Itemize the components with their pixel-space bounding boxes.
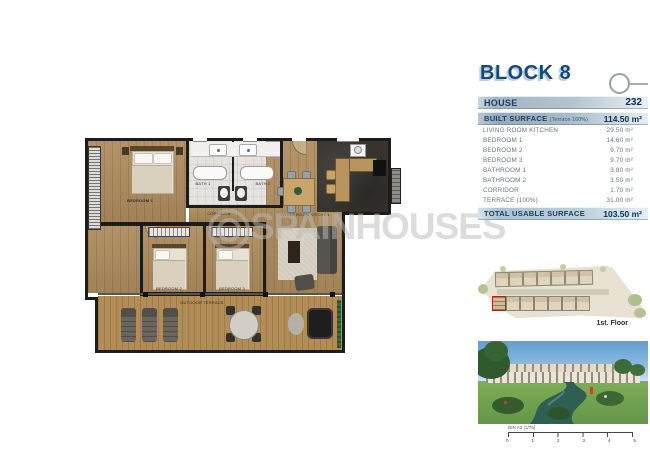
bed2-pillow bbox=[155, 250, 170, 260]
terrace-table bbox=[229, 310, 259, 340]
wall-left-lower bbox=[95, 297, 98, 353]
row-label: CORRIDOR bbox=[483, 187, 519, 194]
site-unit bbox=[562, 296, 576, 311]
site-unit bbox=[509, 272, 523, 287]
terrace-post bbox=[263, 292, 268, 297]
site-unit bbox=[551, 270, 565, 285]
house-label: HOUSE bbox=[484, 98, 518, 108]
site-unit-highlighted bbox=[492, 296, 506, 311]
row-value: 31.00 m² bbox=[607, 197, 633, 204]
render-photo bbox=[478, 341, 648, 424]
built-surface-sub: (Terrace 100%) bbox=[550, 117, 588, 123]
wall-bottom bbox=[95, 350, 345, 353]
hall-floor bbox=[88, 222, 140, 293]
photo-bush bbox=[548, 407, 570, 420]
armchair bbox=[294, 274, 315, 291]
watermark-logo-inner-icon bbox=[217, 218, 241, 242]
sun-lounger bbox=[163, 308, 178, 342]
scale-ruler bbox=[508, 432, 633, 437]
terrace-railing bbox=[98, 293, 342, 295]
row-value: 3.80 m² bbox=[610, 167, 633, 174]
site-unit bbox=[534, 296, 548, 311]
site-unit bbox=[579, 270, 593, 285]
total-surface-label: TOTAL USABLE SURFACE bbox=[484, 209, 585, 218]
scale-tick: 5 bbox=[633, 438, 636, 443]
kitchen-sink bbox=[354, 146, 362, 154]
terrace-post bbox=[200, 292, 205, 297]
site-row-bottom bbox=[492, 296, 590, 311]
wall-bed2-bed3 bbox=[203, 226, 206, 296]
tree-blob bbox=[478, 284, 488, 294]
site-unit bbox=[548, 296, 562, 311]
tree-blob bbox=[634, 308, 646, 318]
bed1-pillow bbox=[134, 153, 153, 164]
ac-unit bbox=[391, 168, 401, 204]
surface-table: LIVING ROOM KITCHEN29.50 m² BEDROOM 114.… bbox=[483, 126, 633, 205]
house-number: 232 bbox=[625, 97, 642, 108]
bar-stool bbox=[326, 184, 336, 194]
bed2-blanket bbox=[153, 260, 185, 289]
row-value: 3.50 m² bbox=[610, 177, 633, 184]
bedroom3-label: BEDROOM 3 bbox=[210, 286, 254, 291]
row-label: BATHROOM 2 bbox=[483, 177, 526, 184]
nightstand bbox=[176, 147, 183, 155]
terrace-pouf bbox=[288, 313, 304, 335]
row-value: 9.70 m² bbox=[610, 157, 633, 164]
scale-ticks: 0 1 2 3 4 5 bbox=[506, 438, 636, 443]
terrace-post bbox=[330, 292, 335, 297]
floorplan-sheet: BEDROOM 1 BATH 1 BATH 2 CORRIDOR BEDROOM… bbox=[0, 0, 650, 450]
toilet bbox=[218, 186, 230, 201]
table-row: BEDROOM 29.70 m² bbox=[483, 146, 633, 156]
bedroom1-label: BEDROOM 1 bbox=[105, 198, 175, 203]
sun-lounger bbox=[121, 308, 136, 342]
site-unit bbox=[523, 271, 537, 286]
wall-bed2-left bbox=[140, 222, 143, 296]
bed3-blanket bbox=[216, 260, 248, 289]
bed1-blanket bbox=[132, 165, 172, 193]
scale-label: DIN A3 (1/75) bbox=[508, 425, 535, 430]
site-unit bbox=[565, 270, 579, 285]
bedroom2-label: BEDROOM 2 bbox=[147, 286, 191, 291]
bedroom1-window-shutter bbox=[88, 146, 101, 230]
site-unit bbox=[576, 296, 590, 311]
terrace-label: OUTDOOR TERRACE bbox=[170, 300, 234, 305]
nightstand bbox=[122, 147, 129, 155]
bath-counter bbox=[191, 142, 280, 157]
orientation-icon bbox=[609, 73, 630, 94]
sun-lounger bbox=[142, 308, 157, 342]
tree-blob bbox=[628, 294, 642, 306]
site-unit bbox=[506, 296, 520, 311]
table-plant bbox=[294, 187, 302, 195]
wall-bed1-bath bbox=[186, 138, 189, 208]
row-value: 29.50 m² bbox=[607, 127, 633, 134]
terrace-post bbox=[143, 292, 148, 297]
table-row: TERRACE (100%)31.00 m² bbox=[483, 195, 633, 205]
photo-bush bbox=[492, 397, 524, 414]
row-label: TERRACE (100%) bbox=[483, 197, 538, 204]
row-label: LIVING ROOM KITCHEN bbox=[483, 127, 558, 134]
bedroom2-wardrobe bbox=[148, 227, 190, 237]
bbq bbox=[307, 308, 333, 339]
total-surface-bar: TOTAL USABLE SURFACE 103.50 m² bbox=[478, 207, 648, 220]
bar-stool bbox=[326, 170, 336, 180]
kitchen-window bbox=[337, 138, 359, 142]
row-value: 9.70 m² bbox=[610, 147, 633, 154]
hedge bbox=[337, 300, 341, 348]
photo-tree bbox=[630, 364, 645, 376]
watermark-text: SPAINHOUSES bbox=[250, 206, 506, 248]
site-unit bbox=[537, 271, 551, 286]
fridge bbox=[373, 160, 386, 176]
block-title: BLOCK 8 bbox=[480, 62, 571, 85]
table-row: BATHROOM 13.80 m² bbox=[483, 166, 633, 176]
kitchen-counter-left bbox=[335, 158, 350, 202]
scale-tick: 0 bbox=[506, 438, 509, 443]
table-row: LIVING ROOM KITCHEN29.50 m² bbox=[483, 126, 633, 136]
sink bbox=[209, 144, 227, 156]
row-value: 14.60 m² bbox=[607, 137, 633, 144]
photo-bush bbox=[596, 391, 624, 406]
sink bbox=[239, 144, 257, 156]
table-row: CORRIDOR1.70 m² bbox=[483, 185, 633, 195]
photo-tree bbox=[614, 359, 632, 374]
built-surface-bar: BUILT SURFACE (Terrace 100%) 114.50 m² bbox=[478, 112, 648, 125]
house-bar: HOUSE 232 bbox=[478, 96, 648, 109]
bath2-label: BATH 2 bbox=[249, 181, 277, 186]
row-label: BATHROOM 1 bbox=[483, 167, 526, 174]
row-label: BEDROOM 2 bbox=[483, 147, 523, 154]
photo-tree bbox=[484, 341, 508, 361]
photo-flower bbox=[504, 401, 507, 404]
scale-tick: 4 bbox=[608, 438, 611, 443]
site-unit bbox=[495, 272, 509, 287]
bathtub bbox=[240, 166, 274, 180]
row-label: BEDROOM 3 bbox=[483, 157, 523, 164]
bath1-label: BATH 1 bbox=[189, 181, 217, 186]
bed1-pillow bbox=[153, 153, 172, 164]
built-surface-value: 114.50 m² bbox=[604, 114, 642, 124]
tree-blob bbox=[600, 266, 606, 272]
built-surface-title: BUILT SURFACE bbox=[484, 114, 547, 123]
photo-golfer bbox=[590, 387, 593, 394]
total-surface-value: 103.50 m² bbox=[603, 209, 642, 219]
table-row: BEDROOM 114.60 m² bbox=[483, 136, 633, 146]
scale-tick: 1 bbox=[531, 438, 534, 443]
row-label: BEDROOM 1 bbox=[483, 137, 523, 144]
bed3-pillow bbox=[218, 250, 233, 260]
site-unit bbox=[520, 296, 534, 311]
table-row: BATHROOM 23.50 m² bbox=[483, 175, 633, 185]
table-row: BEDROOM 39.70 m² bbox=[483, 156, 633, 166]
built-surface-label: BUILT SURFACE (Terrace 100%) bbox=[484, 114, 588, 123]
scale-tick: 3 bbox=[582, 438, 585, 443]
site-row-top bbox=[495, 270, 593, 288]
photo-flower bbox=[604, 395, 607, 398]
tree-blob bbox=[560, 264, 566, 270]
floor-caption: 1st. Floor bbox=[596, 320, 628, 327]
scale-tick: 2 bbox=[557, 438, 560, 443]
row-value: 1.70 m² bbox=[610, 187, 633, 194]
site-road bbox=[497, 289, 609, 295]
bathtub bbox=[193, 166, 227, 180]
toilet bbox=[235, 186, 247, 201]
